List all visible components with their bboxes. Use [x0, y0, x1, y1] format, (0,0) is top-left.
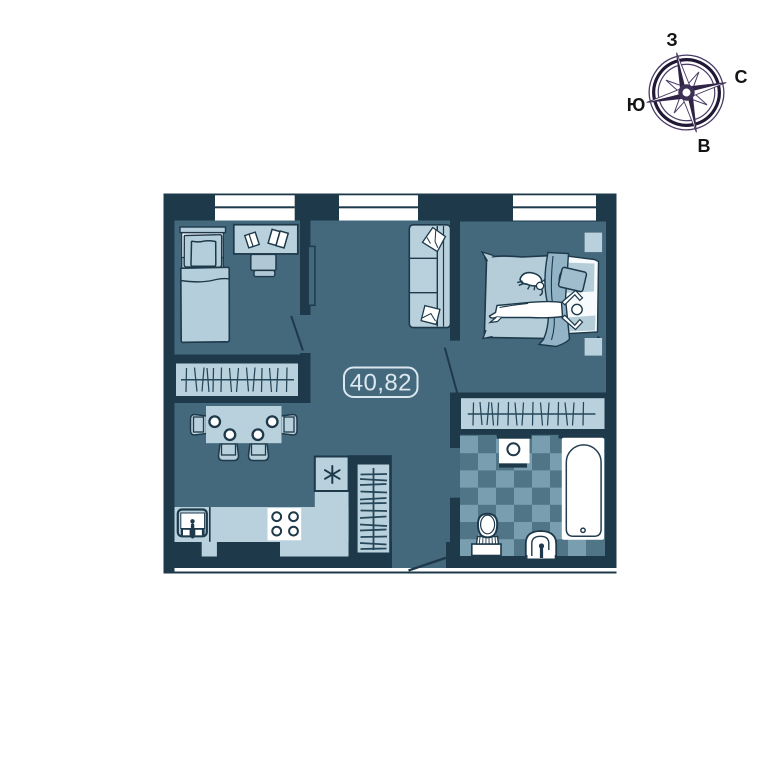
svg-text:З: З — [666, 30, 677, 50]
svg-text:40,82: 40,82 — [350, 370, 412, 397]
svg-text:Ю: Ю — [627, 95, 646, 115]
svg-text:С: С — [735, 67, 748, 87]
svg-text:В: В — [698, 136, 711, 156]
